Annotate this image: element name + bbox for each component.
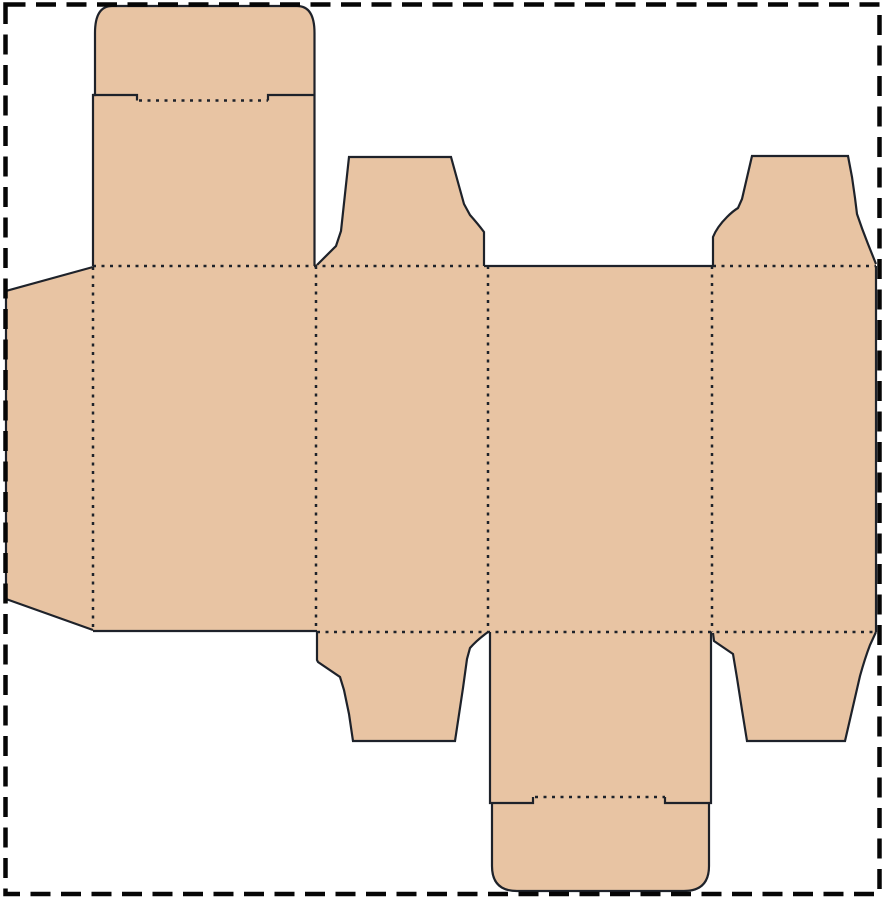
carton-silhouette bbox=[6, 6, 876, 891]
dieline-drawing bbox=[0, 0, 885, 900]
dieline-page bbox=[0, 0, 885, 900]
